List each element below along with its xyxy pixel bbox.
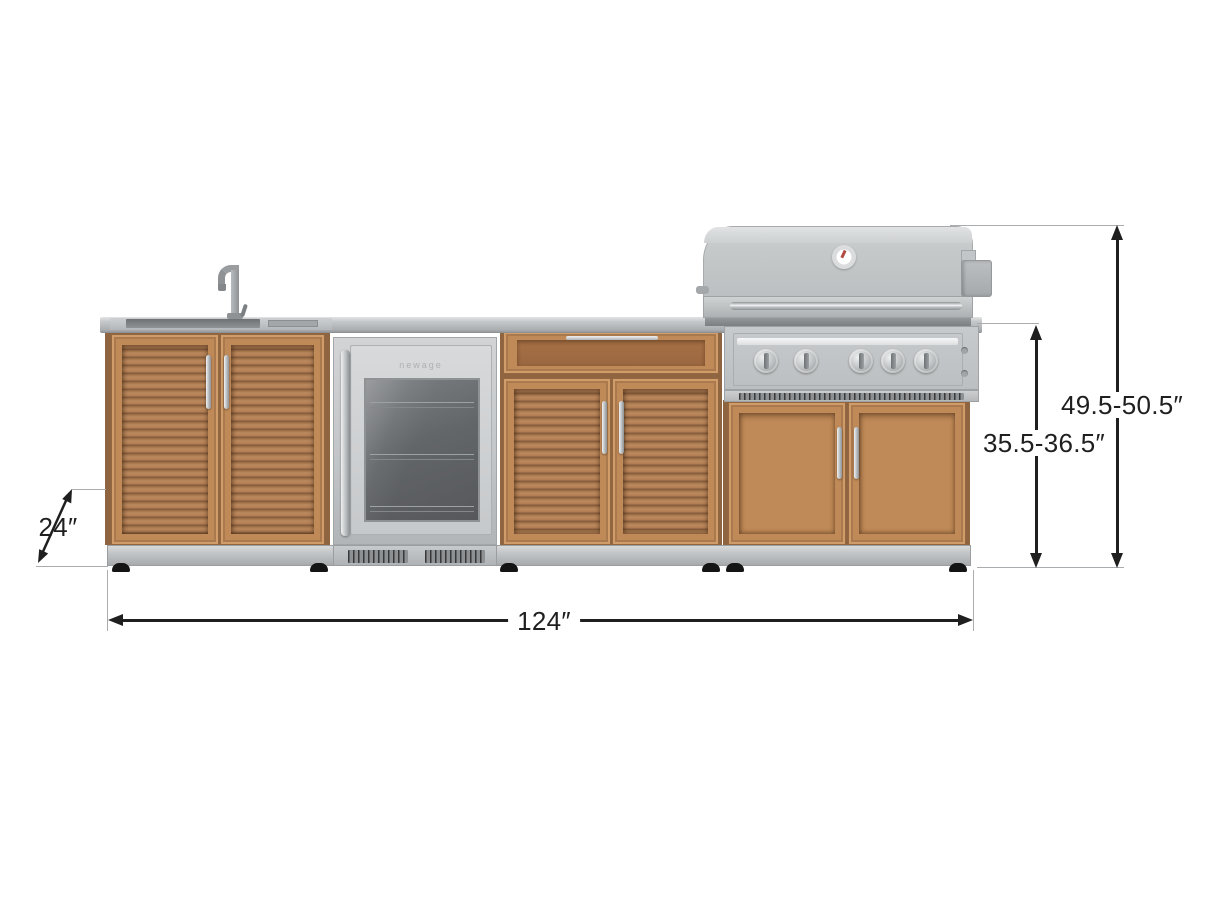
arrowhead-right [958,614,973,626]
rotisserie-motor-bracket [961,260,992,297]
grill-control-panel [724,326,979,390]
louver-panel [623,389,708,534]
leveling-foot [500,563,518,572]
fridge-shelf [370,402,474,408]
louver-panel [859,413,955,534]
fridge-vent-grille [425,550,485,563]
fridge-door: newage [350,345,492,535]
hood-lip [703,296,973,318]
sink-side-tray [268,320,318,327]
leveling-foot [310,563,328,572]
door-handle [854,427,859,479]
extension-line [950,225,1124,226]
arrowhead-up [1111,225,1123,240]
drawer-recessed-panel [517,340,705,366]
thermometer-needle [840,250,846,258]
burner-knob [914,349,938,373]
grill-vent-rail [724,390,979,402]
burner-knob [794,349,818,373]
louver-panel [231,345,314,534]
extension-line [977,323,1039,324]
door-handle [206,355,211,409]
door-handle [837,427,842,479]
drawer-handle [566,336,658,340]
extension-line [973,570,974,631]
hood-top-highlight [704,227,972,243]
hood-thermometer [832,245,856,269]
leveling-foot [112,563,130,572]
grill-hood [703,226,973,298]
panel-screw [961,347,968,354]
door-handle [619,401,624,454]
arrowhead-left [108,614,123,626]
product-dimension-diagram: newage [0,0,1214,911]
sink-cabinet-right-door [220,334,325,545]
door-handle [602,401,607,454]
dimension-label-width: 124″ [508,608,580,634]
fridge-brand-logo: newage [399,360,443,370]
grill-vent-grille [739,393,964,400]
door-handle [224,355,229,409]
arrowhead-down [1111,553,1123,568]
extension-line [977,567,1124,568]
faucet-column [231,270,239,318]
drawer-cabinet-left-door [503,378,611,545]
arrowhead-down [1030,553,1042,568]
fridge-handle [341,350,350,536]
faucet-handle [240,304,248,318]
dimension-label-counter-height: 35.5-36.5″ [974,430,1114,456]
burner-knob [754,349,778,373]
cabinet-drawer [503,331,719,374]
outdoor-fridge: newage [333,337,497,545]
hood-under-shadow [705,318,971,326]
fridge-shelf [370,454,474,460]
louver-panel [514,389,600,534]
panel-screw [961,370,968,377]
arrowhead-up [1030,325,1042,340]
leveling-foot [726,563,744,572]
louver-panel [122,345,208,534]
sink-cabinet-left-door [111,334,219,545]
grill-hood-handle [730,302,962,310]
burner-knob [881,349,905,373]
sink-basin [126,319,260,328]
hood-hinge [696,286,709,294]
leveling-foot [949,563,967,572]
fridge-shelf [370,506,474,512]
leveling-foot [702,563,720,572]
grill-cabinet-left-door [728,402,846,545]
fridge-vent-panel [333,545,497,566]
drawer-cabinet-right-door [612,378,719,545]
fridge-vent-grille [348,550,408,563]
louver-panel [739,413,835,534]
faucet-spout [218,284,226,291]
glass-reflection [366,380,478,520]
burner-knob [849,349,873,373]
fridge-glass-window [364,378,480,522]
base-kick-plate [107,545,971,566]
dimension-label-overall-height: 49.5-50.5″ [1052,392,1192,418]
dimension-label-depth: 24″ [29,514,86,540]
grill-cabinet-right-door [848,402,966,545]
